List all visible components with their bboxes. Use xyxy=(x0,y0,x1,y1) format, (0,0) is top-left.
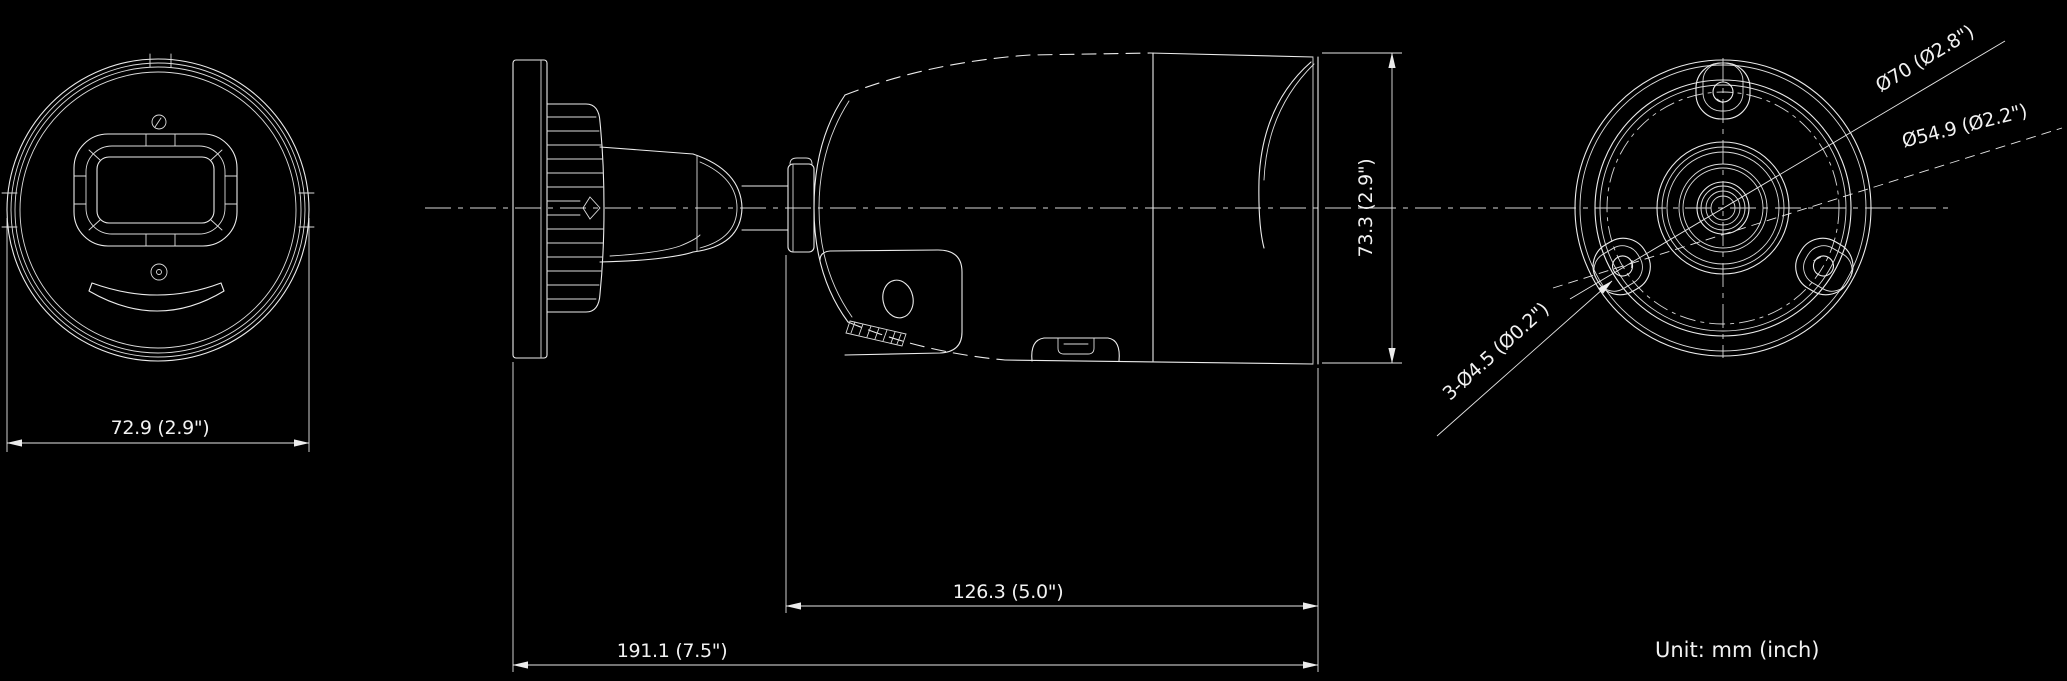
lens-window-outer xyxy=(74,134,237,246)
side-front-length-dimension: 126.3 (5.0") xyxy=(786,255,1318,672)
side-view: 73.3 (2.9") 126.3 (5.0") 191.1 (7.5") xyxy=(513,53,1402,672)
front-top-notch xyxy=(150,54,171,67)
technical-drawing-canvas: 72.9 (2.9") xyxy=(0,0,2067,681)
back-mount-holes-label: 3-Ø4.5 (Ø0.2") xyxy=(1439,298,1554,404)
front-bottom-screw-center xyxy=(157,270,162,275)
joint-cover-top xyxy=(600,147,693,154)
front-view: 72.9 (2.9") xyxy=(2,54,314,452)
front-vent-slot xyxy=(89,283,224,311)
lens-corner-marks xyxy=(89,150,222,230)
side-panel xyxy=(820,250,962,355)
lens-window-mid xyxy=(86,146,225,234)
back-view: Ø70 (Ø2.8") Ø54.9 (Ø2.2") 3-Ø4.5 (Ø0.2") xyxy=(1437,21,2062,436)
side-panel-screw xyxy=(879,277,916,320)
body-back-dome-inner xyxy=(819,101,852,317)
lens-window-inner xyxy=(97,157,214,223)
front-width-dimension: 72.9 (2.9") xyxy=(7,218,309,452)
body-top-edge-front xyxy=(1150,53,1313,57)
body-top-edge-back xyxy=(845,53,1150,95)
back-outer-diameter-label: Ø70 (Ø2.8") xyxy=(1872,21,1978,97)
back-mount-circle-label: Ø54.9 (Ø2.2") xyxy=(1900,100,2030,152)
cable-clip xyxy=(1032,338,1120,361)
front-bottom-screw xyxy=(151,264,167,280)
front-top-screw-slot xyxy=(155,118,161,127)
side-height-dimension-label: 73.3 (2.9") xyxy=(1355,159,1377,258)
side-total-length-dimension-label: 191.1 (7.5") xyxy=(617,640,728,662)
mount-plate xyxy=(513,60,547,358)
front-width-dimension-label: 72.9 (2.9") xyxy=(111,417,210,439)
front-outer-rim xyxy=(7,59,309,361)
slot-outline xyxy=(1787,229,1862,304)
joint-cover-bottom xyxy=(600,252,693,262)
front-rim-line xyxy=(20,72,296,348)
joint-cover-bottom-inner xyxy=(610,235,700,256)
back-outer-diameter-callout: Ø70 (Ø2.8") xyxy=(1570,21,2005,299)
extension-lines xyxy=(786,255,1318,672)
leader-line xyxy=(1437,281,1612,436)
side-front-length-dimension-label: 126.3 (5.0") xyxy=(953,581,1064,603)
front-rim-line xyxy=(11,63,305,357)
lens-hood-curve-inner xyxy=(1264,64,1314,180)
lens-side-tabs xyxy=(74,134,237,246)
unit-note: Unit: mm (inch) xyxy=(1655,638,1819,662)
front-rim-line xyxy=(15,67,301,353)
slot-outline-inner xyxy=(1797,239,1859,298)
camera-dimension-drawing: 72.9 (2.9") xyxy=(0,0,2067,681)
body-rear-cap-bump xyxy=(790,158,812,164)
body-bottom-edge-front xyxy=(1005,360,1313,364)
front-top-screw xyxy=(152,115,166,129)
leader-line xyxy=(1570,41,2005,299)
mount-slot-bottom-right xyxy=(1787,229,1862,304)
joint-cover-dome xyxy=(693,154,742,252)
side-total-length-dimension: 191.1 (7.5") xyxy=(513,362,1318,672)
back-mount-holes-callout: 3-Ø4.5 (Ø0.2") xyxy=(1437,281,1612,436)
